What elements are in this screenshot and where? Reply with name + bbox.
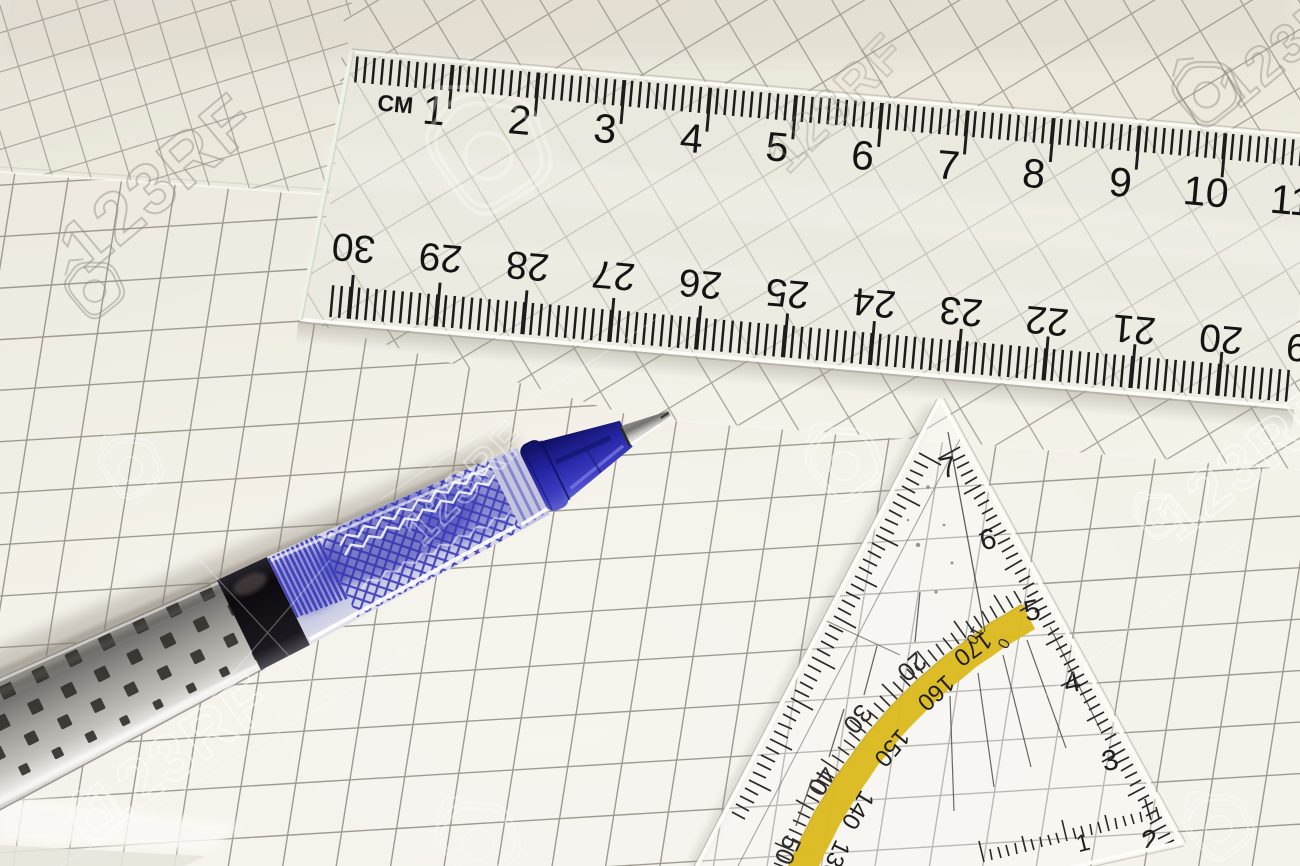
svg-text:22: 22 — [1024, 297, 1071, 344]
svg-text:4: 4 — [678, 114, 705, 162]
svg-text:21: 21 — [1111, 305, 1158, 352]
svg-text:27: 27 — [590, 252, 637, 299]
svg-text:24: 24 — [851, 279, 898, 326]
svg-text:23: 23 — [938, 288, 985, 335]
svg-text:CM: CM — [376, 90, 414, 119]
svg-text:11: 11 — [1268, 176, 1300, 226]
svg-text:9: 9 — [1107, 158, 1134, 206]
svg-text:20: 20 — [1198, 315, 1245, 362]
svg-text:30: 30 — [330, 224, 377, 271]
svg-text:6: 6 — [849, 132, 876, 180]
svg-text:8: 8 — [1020, 150, 1047, 198]
svg-text:3: 3 — [592, 105, 619, 153]
svg-text:29: 29 — [417, 234, 464, 281]
svg-text:7: 7 — [935, 141, 962, 189]
svg-text:10: 10 — [1181, 167, 1230, 217]
svg-text:28: 28 — [504, 242, 551, 289]
svg-text:25: 25 — [764, 270, 811, 317]
svg-text:26: 26 — [677, 260, 724, 307]
